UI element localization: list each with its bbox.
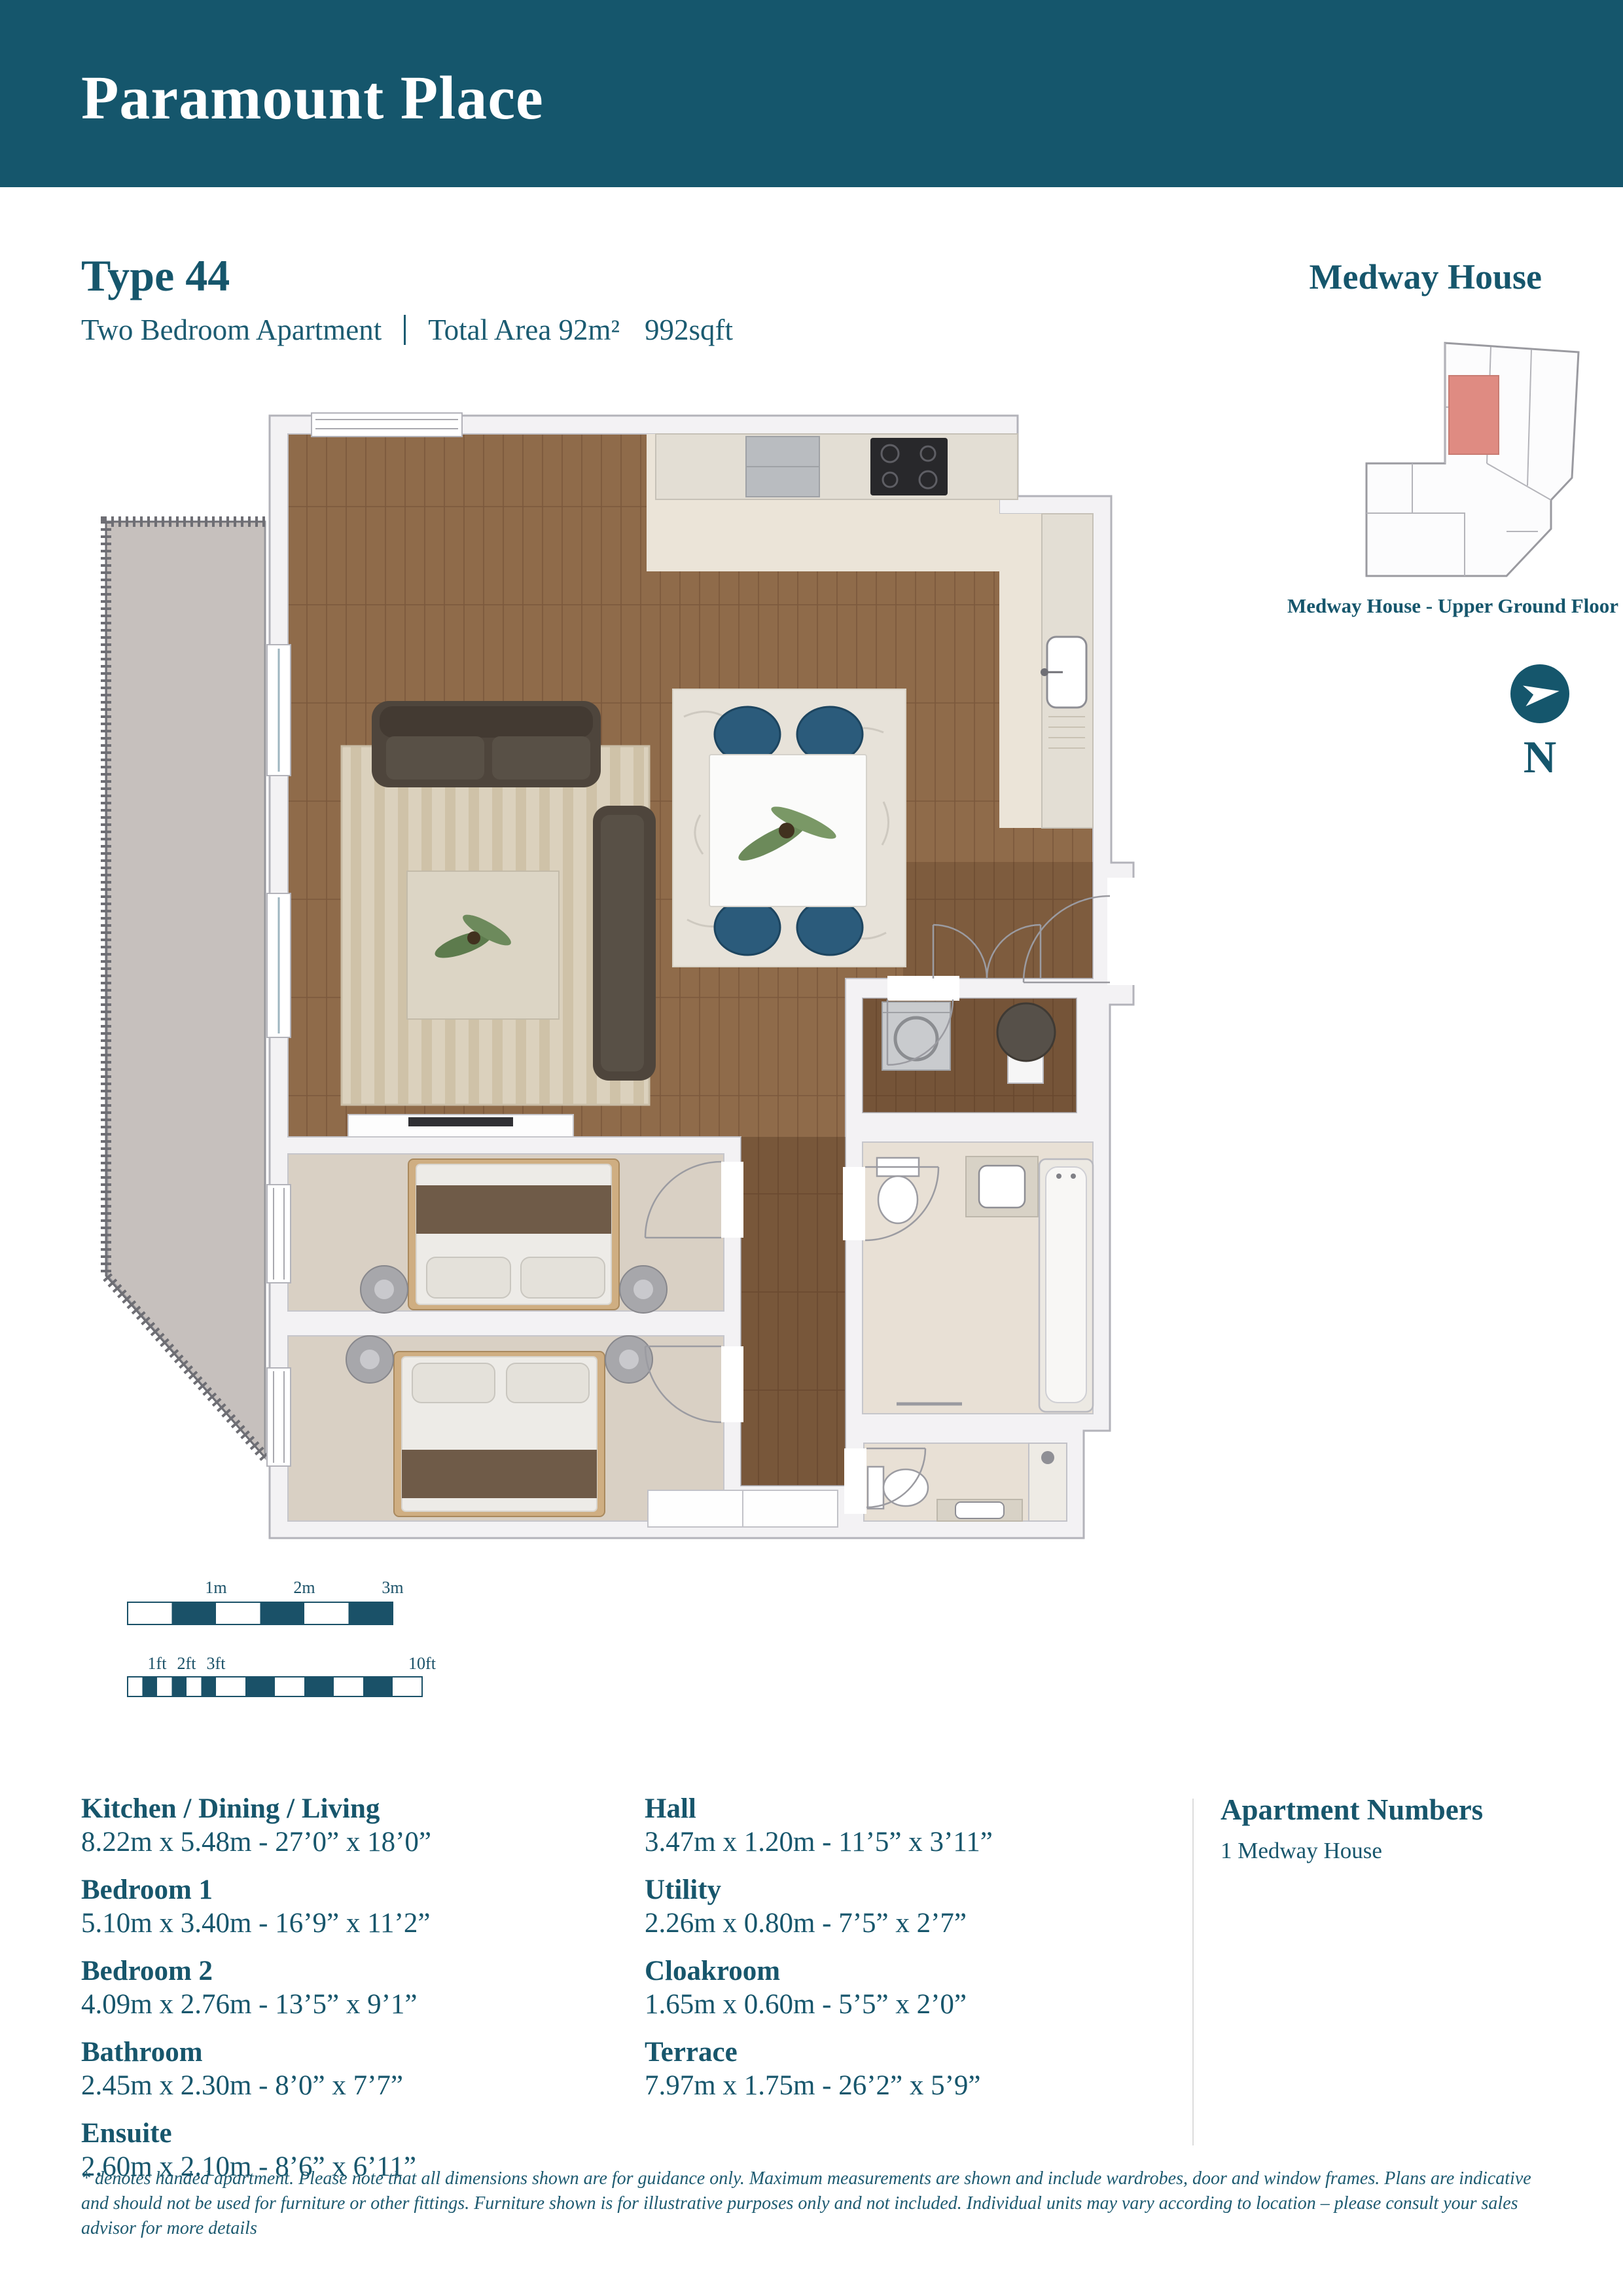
bed-2: [394, 1352, 605, 1516]
scale-label-2ft: 2ft: [177, 1654, 197, 1673]
entrance-door: [1107, 878, 1136, 985]
subtitle-divider: [404, 315, 406, 345]
washing-machine: [882, 1002, 950, 1070]
bathroom: [863, 1142, 1093, 1414]
scale-bars: 1m 2m 3m 1ft 2ft 3ft 10ft: [111, 1571, 452, 1721]
room-label: Bedroom 1: [81, 1873, 579, 1907]
kitchen-counter-top: [656, 434, 1018, 499]
terrace: [106, 522, 265, 1458]
room-entry: Hall3.47m x 1.20m - 11’5” x 3’11”: [645, 1792, 1142, 1859]
column-divider: [1192, 1799, 1194, 2145]
hall-floor-shade: [741, 1137, 846, 1486]
ensuite: [864, 1443, 1067, 1521]
scale-label-2m: 2m: [293, 1578, 315, 1597]
room-dims: 4.09m x 2.76m - 13’5” x 9’1”: [81, 1988, 579, 2021]
room-dims: 3.47m x 1.20m - 11’5” x 3’11”: [645, 1826, 1142, 1859]
apartment-type-label: Two Bedroom Apartment: [81, 313, 382, 347]
sqft-label: 992sqft: [645, 313, 733, 347]
ensuite-vanity: [937, 1499, 1022, 1521]
room-dims: 2.26m x 0.80m - 7’5” x 2’7”: [645, 1907, 1142, 1940]
locator-caption: Medway House - Upper Ground Floor: [1283, 594, 1623, 618]
ensuite-toilet: [868, 1467, 928, 1509]
scale-label-10ft: 10ft: [408, 1654, 437, 1673]
highlighted-unit: [1449, 376, 1499, 454]
bathroom-vanity: [966, 1157, 1038, 1217]
room-label: Bedroom 2: [81, 1954, 579, 1988]
north-arrow-icon: [1510, 664, 1569, 723]
living-area: [342, 701, 656, 1137]
sofa: [372, 701, 601, 787]
room-list-left: Kitchen / Dining / Living8.22m x 5.48m -…: [81, 1792, 579, 2198]
room-label: Kitchen / Dining / Living: [81, 1792, 579, 1826]
total-area-label: Total Area 92m²: [428, 313, 620, 347]
scale-label-3m: 3m: [382, 1578, 403, 1597]
utility-basin: [997, 1003, 1055, 1061]
scale-label-1ft: 1ft: [148, 1654, 168, 1673]
room-label: Utility: [645, 1873, 1142, 1907]
scale-label-3ft: 3ft: [207, 1654, 226, 1673]
page-title: Paramount Place: [81, 63, 544, 134]
brochure-page: Paramount Place Type 44 Two Bedroom Apar…: [0, 0, 1623, 2296]
hob: [870, 438, 948, 495]
room-dims: 5.10m x 3.40m - 16’9” x 11’2”: [81, 1907, 579, 1940]
north-indicator: N: [1495, 660, 1587, 791]
room-entry: Kitchen / Dining / Living8.22m x 5.48m -…: [81, 1792, 579, 1859]
room-entry: Bedroom 15.10m x 3.40m - 16’9” x 11’2”: [81, 1873, 579, 1940]
room-label: Bathroom: [81, 2036, 579, 2070]
cloakroom-floor-shade: [903, 862, 1093, 978]
room-entry: Utility2.26m x 0.80m - 7’5” x 2’7”: [645, 1873, 1142, 1940]
dining-area: [673, 689, 906, 967]
north-label: N: [1524, 732, 1557, 783]
shower: [1029, 1443, 1067, 1521]
room-label: Terrace: [645, 2036, 1142, 2070]
metric-scale-bar: 1m 2m 3m: [128, 1578, 404, 1624]
imperial-scale-bar: 1ft 2ft 3ft 10ft: [128, 1654, 437, 1696]
sofa-2: [593, 806, 656, 1081]
utility-room: [863, 998, 1077, 1113]
apartment-numbers: Apartment Numbers 1 Medway House: [1221, 1792, 1561, 1865]
apartment-number-item: 1 Medway House: [1221, 1837, 1561, 1865]
room-label: Cloakroom: [645, 1954, 1142, 1988]
room-entry: Bathroom2.45m x 2.30m - 8’0” x 7’7”: [81, 2036, 579, 2102]
room-entry: Terrace7.97m x 1.75m - 26’2” x 5’9”: [645, 2036, 1142, 2102]
room-list-middle: Hall3.47m x 1.20m - 11’5” x 3’11” Utilit…: [645, 1792, 1142, 2117]
building-locator-map: [1335, 335, 1616, 597]
unit-subtitle: Two Bedroom Apartment Total Area 92m² 99…: [81, 313, 733, 347]
bed-1: [408, 1159, 619, 1310]
building-name: Medway House: [1310, 257, 1542, 297]
room-dims: 7.97m x 1.75m - 26’2” x 5’9”: [645, 2070, 1142, 2102]
apartment-numbers-heading: Apartment Numbers: [1221, 1792, 1561, 1827]
bathtub: [1039, 1159, 1093, 1412]
scale-label-1m: 1m: [205, 1578, 226, 1597]
floor-plan: [92, 409, 1152, 1548]
coffee-table: [407, 871, 559, 1019]
room-dims: 8.22m x 5.48m - 27’0” x 18’0”: [81, 1826, 579, 1859]
unit-type-title: Type 44: [81, 250, 230, 302]
bedroom-1: [288, 1154, 724, 1313]
header-bar: Paramount Place: [0, 0, 1623, 187]
room-entry: Bedroom 24.09m x 2.76m - 13’5” x 9’1”: [81, 1954, 579, 2021]
room-label: Hall: [645, 1792, 1142, 1826]
tv: [408, 1117, 513, 1126]
room-entry: Cloakroom1.65m x 0.60m - 5’5” x 2’0”: [645, 1954, 1142, 2021]
room-dims: 1.65m x 0.60m - 5’5” x 2’0”: [645, 1988, 1142, 2021]
room-label: Ensuite: [81, 2117, 579, 2151]
disclaimer-text: * denotes handed apartment. Please note …: [81, 2166, 1558, 2241]
wardrobe: [648, 1490, 838, 1527]
room-dims: 2.45m x 2.30m - 8’0” x 7’7”: [81, 2070, 579, 2102]
